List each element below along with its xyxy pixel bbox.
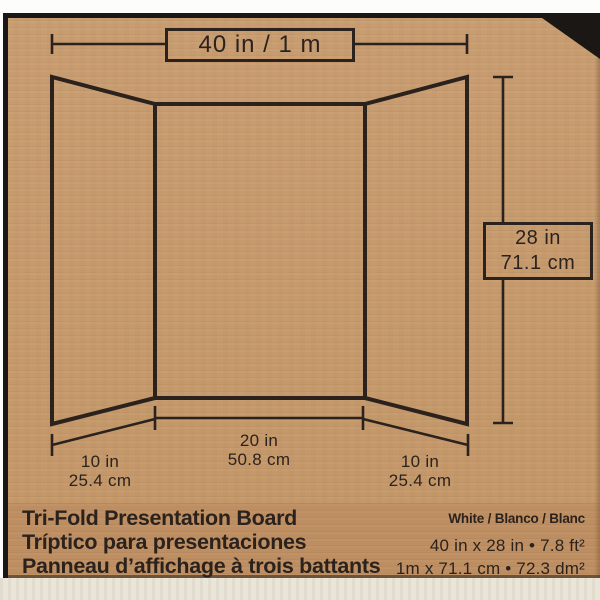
size-metric-label: 1m x 71.1 cm • 72.3 dm² xyxy=(396,557,585,580)
center-panel-inches: 20 in xyxy=(194,432,324,451)
product-title-english: Tri-Fold Presentation Board xyxy=(22,507,380,531)
right-flap-inches: 10 in xyxy=(355,453,485,472)
right-flap-cm: 25.4 cm xyxy=(355,472,485,491)
center-width-line xyxy=(155,406,363,430)
package-front-photo: 40 in / 1 m 28 in 71.1 cm 10 in 25.4 cm … xyxy=(0,0,600,600)
total-width-label: 40 in / 1 m xyxy=(198,31,321,59)
color-variant-label: White / Blanco / Blanc xyxy=(396,511,585,526)
right-flap-width-line xyxy=(363,419,468,456)
size-imperial-label: 40 in x 28 in • 7.8 ft² xyxy=(396,534,585,557)
product-specs: White / Blanco / Blanc 40 in x 28 in • 7… xyxy=(396,511,585,580)
height-label-box: 28 in 71.1 cm xyxy=(483,222,593,280)
left-flap-inches: 10 in xyxy=(35,453,165,472)
product-title-spanish: Tríptico para presentaciones xyxy=(22,531,380,555)
right-flap-width-label: 10 in 25.4 cm xyxy=(355,453,485,490)
left-flap-width-line xyxy=(52,419,155,456)
board-outline xyxy=(52,77,467,424)
left-flap-width-label: 10 in 25.4 cm xyxy=(35,453,165,490)
center-panel-outline xyxy=(155,104,365,398)
center-panel-cm: 50.8 cm xyxy=(194,451,324,470)
height-cm-label: 71.1 cm xyxy=(501,251,576,276)
left-flap-cm: 25.4 cm xyxy=(35,472,165,491)
product-titles: Tri-Fold Presentation Board Tríptico par… xyxy=(22,507,380,578)
center-panel-width-label: 20 in 50.8 cm xyxy=(194,432,324,469)
total-width-label-box: 40 in / 1 m xyxy=(165,28,355,62)
left-flap-outline xyxy=(52,77,155,424)
height-inches-label: 28 in xyxy=(515,226,561,251)
right-flap-outline xyxy=(365,77,467,424)
product-title-french: Panneau d’affichage à trois battants xyxy=(22,555,380,579)
